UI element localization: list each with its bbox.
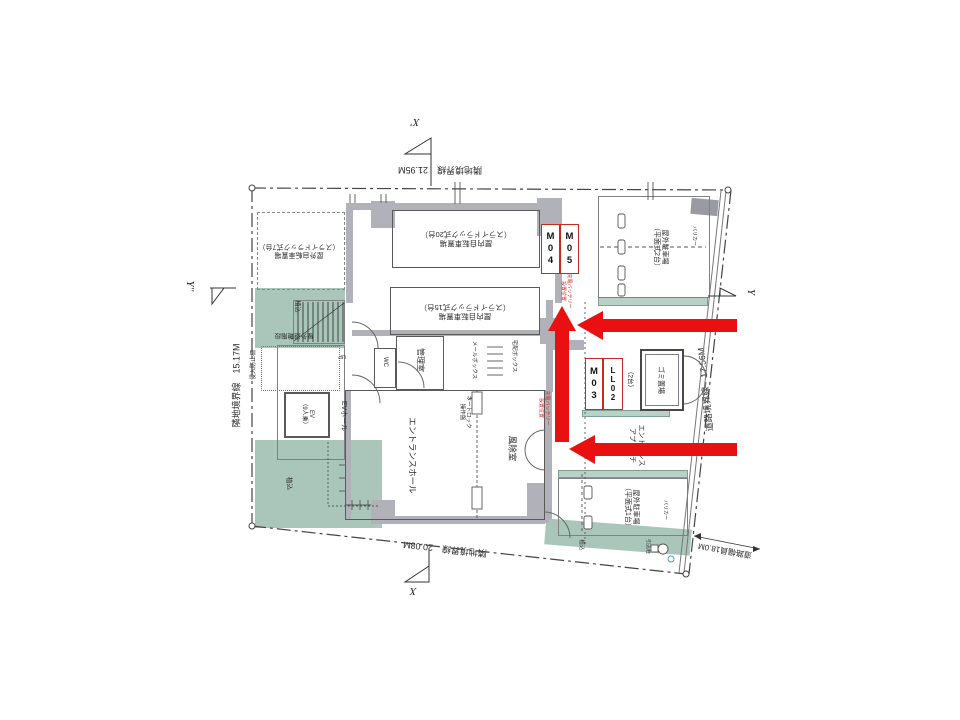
label-delivery-box: 宅配ボックス xyxy=(509,331,519,381)
room-entrance-hall xyxy=(345,390,545,520)
hedge-strip-north-parking xyxy=(598,297,708,306)
area-bike-outdoor-7 xyxy=(257,212,345,290)
room-garbage-inner xyxy=(645,354,679,406)
room-bike-indoor-15 xyxy=(390,287,540,335)
wall-stub-east xyxy=(546,340,584,350)
wall-west-upper xyxy=(346,203,353,303)
tag-m04: M04 xyxy=(541,224,560,274)
site-plan: 隣地境界線 21.95M 隣地境界線 15.17M 道路境界線 17.56M 隣… xyxy=(0,0,960,720)
tag-m05: M05 xyxy=(560,224,579,274)
tag-ll02: LL02 xyxy=(603,358,623,410)
linework-overlay xyxy=(0,0,960,720)
room-manager xyxy=(396,336,444,390)
arrow-left-lower xyxy=(569,435,737,464)
area-stair-landing xyxy=(261,346,340,391)
room-ev-shaft xyxy=(284,392,330,438)
axis-marker-y: Y xyxy=(744,281,758,303)
boundary-label-north: 隣地境界線 21.95M xyxy=(352,163,528,176)
area-parking-2 xyxy=(598,196,710,298)
road-width-dimension xyxy=(694,533,760,552)
area-stairs xyxy=(293,300,345,344)
tag-m03: M03 xyxy=(585,358,603,410)
axis-marker-x: X xyxy=(400,583,426,599)
axis-marker-y-double-prime: Y'' xyxy=(183,272,197,300)
axis-marker-x-prime: X' xyxy=(402,114,428,130)
label-two-units: （2台） xyxy=(625,366,636,394)
hedge-strip-south-parking xyxy=(558,470,688,478)
hedge-strip-garbage xyxy=(582,410,670,417)
area-parking-1 xyxy=(558,478,688,536)
label-mailbox: メールボックス xyxy=(469,335,479,385)
boundary-label-west: 隣地境界線 15.17M xyxy=(231,321,244,451)
room-wc xyxy=(374,348,396,388)
road-width-label: 道路幅員18.0M xyxy=(686,538,765,562)
boundary-label-east: 道路境界線 17.56M xyxy=(693,329,718,450)
arrow-left-upper xyxy=(577,311,737,340)
label-intrusion-fence: 侵入防止柵 xyxy=(250,341,260,389)
room-bike-indoor-20 xyxy=(392,210,540,268)
boundary-label-south: 隣地境界線 20.08M xyxy=(365,534,525,564)
label-entrance-approach: エントランス アプローチ xyxy=(628,418,645,474)
